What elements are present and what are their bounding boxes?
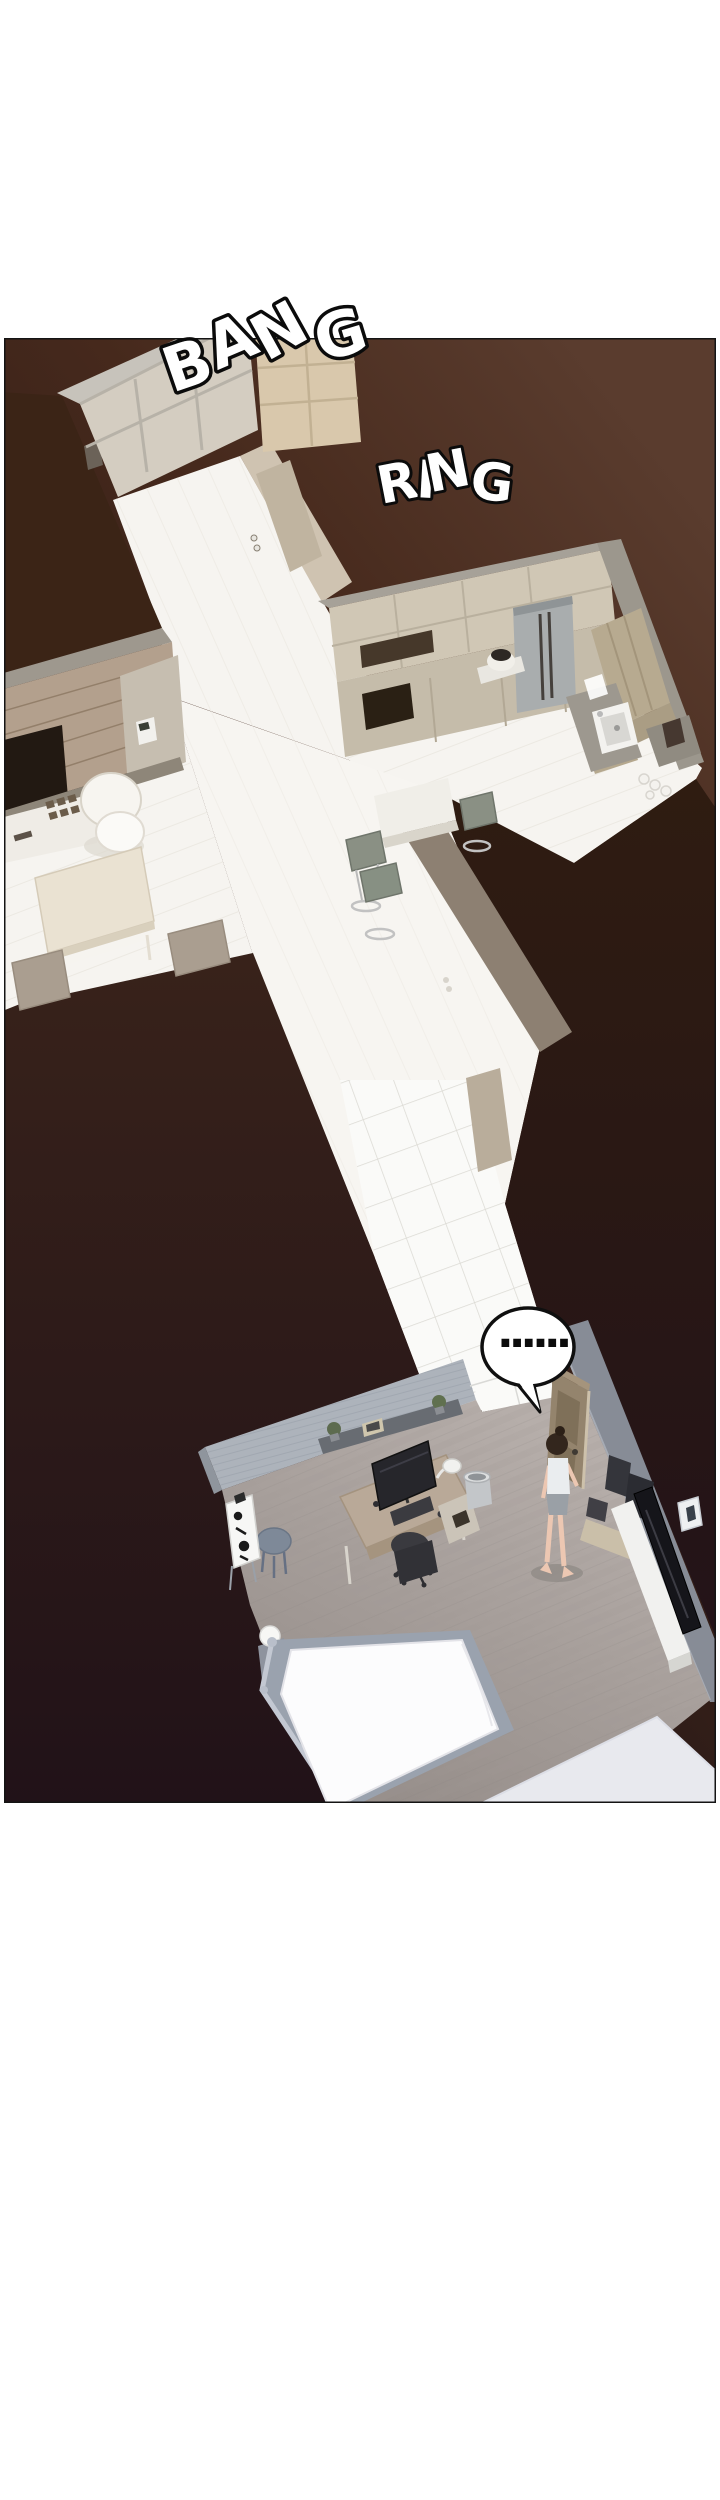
hair-bun — [555, 1426, 565, 1436]
character-shadow — [531, 1564, 583, 1582]
corridor-door-handle — [443, 977, 449, 983]
faucet — [597, 711, 603, 717]
wall-switch — [678, 1497, 702, 1531]
head — [546, 1433, 568, 1455]
desk-lamp — [443, 1459, 461, 1473]
round-chair — [81, 773, 144, 858]
comic-panel-illustration: ...... RING BANG — [0, 0, 720, 2500]
shorts — [546, 1492, 569, 1515]
bubble-dots-text: ...... — [497, 1307, 569, 1358]
ac-control-panel — [136, 717, 157, 745]
trash-bin — [464, 1472, 492, 1511]
tank-top — [547, 1458, 570, 1494]
entry-door-knob — [251, 535, 257, 541]
fridge — [513, 596, 576, 713]
panel-content: ...... RING — [0, 317, 717, 1812]
corridor-door-handle-2 — [446, 986, 452, 992]
door-handle — [572, 1449, 578, 1455]
